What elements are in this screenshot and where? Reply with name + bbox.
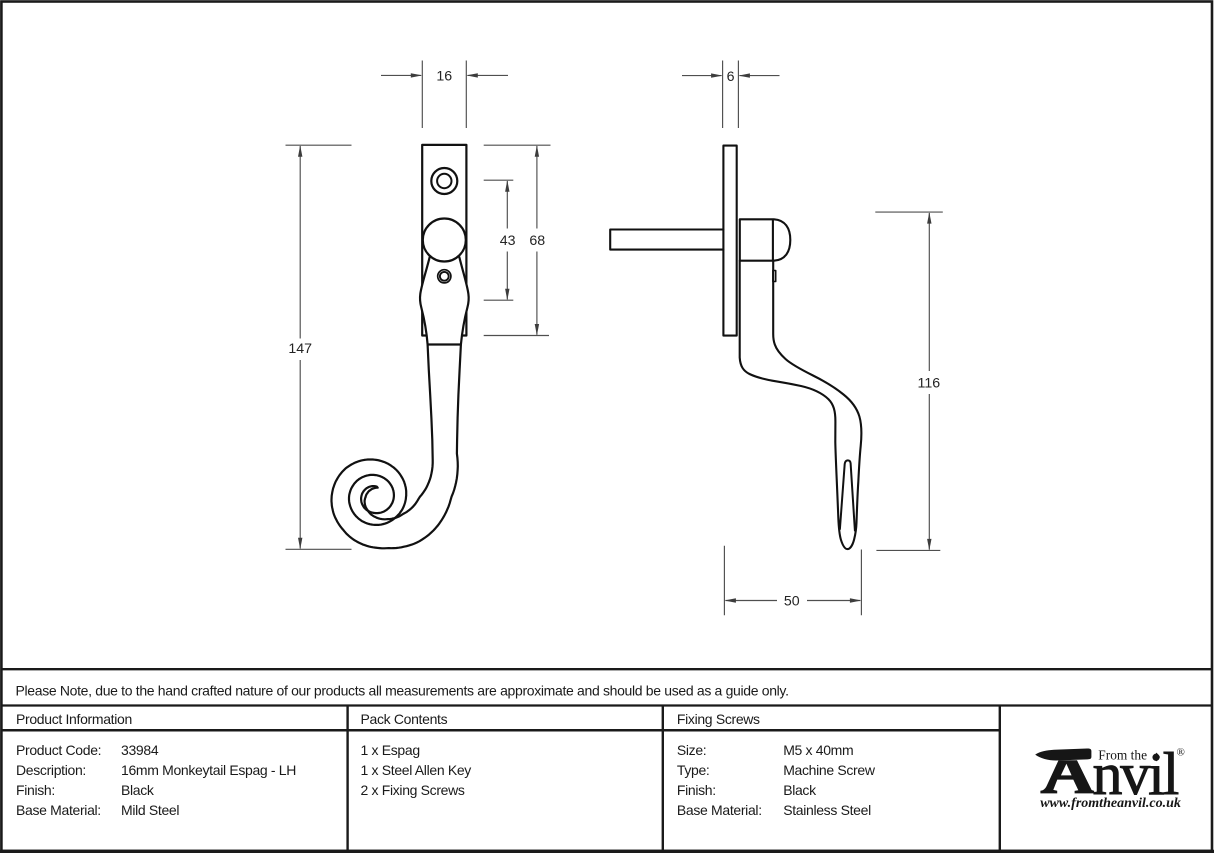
svg-text:Stainless Steel: Stainless Steel (783, 802, 871, 818)
svg-text:www.fromtheanvil.co.uk: www.fromtheanvil.co.uk (1040, 796, 1181, 811)
svg-text:Product Code:: Product Code: (16, 742, 101, 758)
svg-text:2 x Fixing Screws: 2 x Fixing Screws (361, 782, 465, 798)
svg-text:Description:: Description: (16, 762, 86, 778)
svg-text:1 x Steel Allen Key: 1 x Steel Allen Key (361, 762, 472, 778)
svg-text:Please Note, due to the hand c: Please Note, due to the hand crafted nat… (16, 682, 789, 698)
svg-text:6: 6 (727, 69, 735, 85)
svg-text:50: 50 (784, 594, 800, 610)
svg-text:Product Information: Product Information (16, 711, 132, 727)
svg-text:33984: 33984 (121, 742, 159, 758)
svg-text:43: 43 (500, 233, 516, 249)
svg-text:147: 147 (288, 341, 312, 357)
svg-text:116: 116 (917, 376, 940, 392)
svg-text:68: 68 (529, 233, 545, 249)
svg-text:Base Material:: Base Material: (677, 802, 762, 818)
svg-text:Fixing Screws: Fixing Screws (677, 711, 760, 727)
svg-text:Machine Screw: Machine Screw (783, 762, 876, 778)
svg-text:Size:: Size: (677, 742, 706, 758)
svg-text:16: 16 (436, 69, 452, 85)
svg-text:M5 x 40mm: M5 x 40mm (783, 742, 853, 758)
svg-text:1 x Espag: 1 x Espag (361, 742, 420, 758)
svg-text:Black: Black (783, 782, 817, 798)
svg-text:Finish:: Finish: (16, 782, 55, 798)
svg-text:Mild Steel: Mild Steel (121, 802, 179, 818)
svg-text:16mm Monkeytail Espag - LH: 16mm Monkeytail Espag - LH (121, 762, 296, 778)
svg-text:Finish:: Finish: (677, 782, 716, 798)
svg-text:Base Material:: Base Material: (16, 802, 101, 818)
svg-text:Pack Contents: Pack Contents (361, 711, 448, 727)
svg-text:Black: Black (121, 782, 155, 798)
svg-text:Type:: Type: (677, 762, 710, 778)
svg-text:®: ® (1177, 747, 1185, 759)
